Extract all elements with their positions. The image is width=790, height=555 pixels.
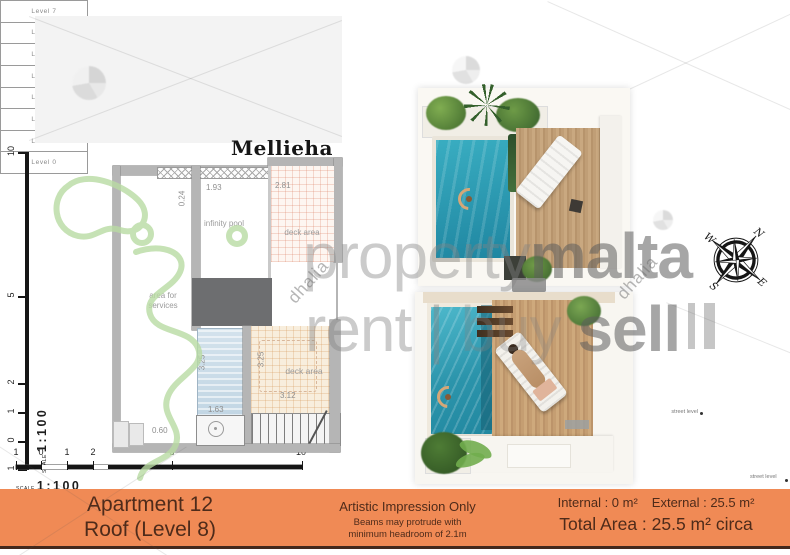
watermark-tag-separator (444, 293, 461, 365)
dimension-label: 0.24 (177, 191, 186, 207)
apartment-title: Apartment 12 (38, 493, 262, 518)
plan-pool (197, 328, 245, 417)
ruler-tick (302, 461, 304, 470)
plan-shower-symbol-dot (214, 427, 217, 430)
watermark-tag-separator: | (428, 293, 444, 365)
ruler-tick (18, 152, 27, 154)
plan-fixture (129, 423, 144, 446)
watermark-line (666, 302, 790, 368)
watermark-brand-bold: malta (530, 220, 692, 292)
render-swimmer-head (445, 394, 451, 400)
vertical-ruler-tick-label: 1 (6, 404, 16, 418)
disclaimer-title: Artistic Impression Only (300, 499, 515, 514)
vertical-ruler-tick-label: 10 (6, 144, 16, 158)
street-level-marker (785, 479, 788, 482)
plan-planter-hatch (157, 167, 277, 179)
dimension-label: 1.63 (208, 405, 224, 414)
watermark-tag-buy: buy (460, 293, 560, 365)
watermark-brand-light: property (303, 220, 530, 292)
ruler-tick (41, 461, 43, 470)
scale-ratio: 1:100 (35, 408, 49, 452)
disclaimer-line: Beams may protrude with (300, 517, 515, 529)
location-title: Mellieha (200, 136, 364, 160)
watermark-tag-sell: sell (577, 293, 680, 365)
levels-highlight-bar (688, 303, 695, 349)
plan-fixture (113, 421, 129, 448)
floorplan-sheet: Mellieha 1052101 SCALE1:100 1012510 SCAL… (0, 0, 790, 555)
dimension-label: 3.25 (197, 355, 206, 371)
footer-rule (0, 546, 790, 549)
vertical-ruler-tick-label: 0 (6, 433, 16, 447)
disclaimer-line: minimum headroom of 2.1m (300, 529, 515, 541)
vertical-ruler-tick-label: 1 (6, 461, 16, 475)
total-area-value: Total Area : 25.5 m² circa (528, 514, 784, 535)
render-mat (565, 420, 589, 429)
level-label: Level 0 (31, 159, 56, 166)
internal-area-value: Internal : 0 m² (558, 495, 638, 510)
plan-wall (268, 158, 342, 166)
ruler-tick (18, 441, 27, 443)
footer-disclaimer: Artistic Impression Only Beams may protr… (300, 499, 515, 542)
watermark-tag-rent: rent (305, 293, 411, 365)
street-level-label-left: street level (650, 409, 698, 415)
horizontal-ruler-tick-label: 1 (60, 447, 74, 457)
levels-highlight-bar (704, 303, 715, 349)
dimension-label: 2.81 (275, 181, 291, 190)
plan-service-block (192, 278, 272, 326)
vertical-ruler-tick-label: 2 (6, 375, 16, 389)
compass-south-label: S (707, 280, 720, 294)
compass-rose: N E S W (698, 222, 774, 298)
ruler-tick (18, 296, 27, 298)
street-level-marker (700, 412, 703, 415)
plan-partition (268, 166, 271, 278)
render-plant (426, 96, 466, 130)
horizontal-ruler-tick-label: 2 (86, 447, 100, 457)
room-label-deck-area-lower: deck area (279, 366, 329, 377)
external-area-value: External : 25.5 m² (652, 495, 755, 510)
vertical-ruler-tick-label: 5 (6, 288, 16, 302)
agency-logo-icon (452, 56, 480, 84)
horizontal-scale-bar (16, 465, 302, 469)
street-level-label-right: street level (750, 474, 784, 480)
watermark-tag-separator (411, 293, 428, 365)
ruler-tick (18, 412, 27, 414)
level-label: Level 7 (31, 8, 56, 15)
dimension-label: 1.93 (206, 183, 222, 192)
compass-west-label: W (701, 231, 718, 248)
horizontal-ruler-tick-label: 0 (34, 447, 48, 457)
render-spiky-plant (464, 84, 510, 126)
ruler-tick (16, 461, 18, 470)
vertical-scale-caption: SCALE1:100 (33, 383, 51, 473)
ruler-tick (67, 461, 69, 470)
vertical-scale-bar (25, 152, 29, 470)
footer-areas: Internal : 0 m² External : 25.5 m² Total… (528, 495, 784, 535)
ruler-tick (93, 461, 95, 470)
room-label-area-for-services: area for services (141, 291, 185, 311)
plan-wall (113, 166, 120, 448)
ruler-tick (18, 469, 27, 471)
plan-stairs (251, 413, 341, 446)
watermark-tag-separator (561, 293, 578, 365)
render-step (507, 444, 571, 468)
watermark-tagline: rent | buy sell (305, 297, 680, 361)
room-label-infinity-pool: infinity pool (201, 219, 247, 229)
dimension-label: 3.12 (280, 391, 296, 400)
ruler-tick (172, 461, 174, 470)
render-side-table (569, 199, 583, 213)
ruler-tick (18, 383, 27, 385)
footer-title: Apartment 12 Roof (Level 8) (38, 493, 262, 543)
agency-logo-icon (72, 66, 106, 100)
dimension-label: 0.60 (152, 426, 168, 435)
dimension-label: 3.25 (256, 352, 265, 368)
render-swimmer-head (466, 196, 472, 202)
